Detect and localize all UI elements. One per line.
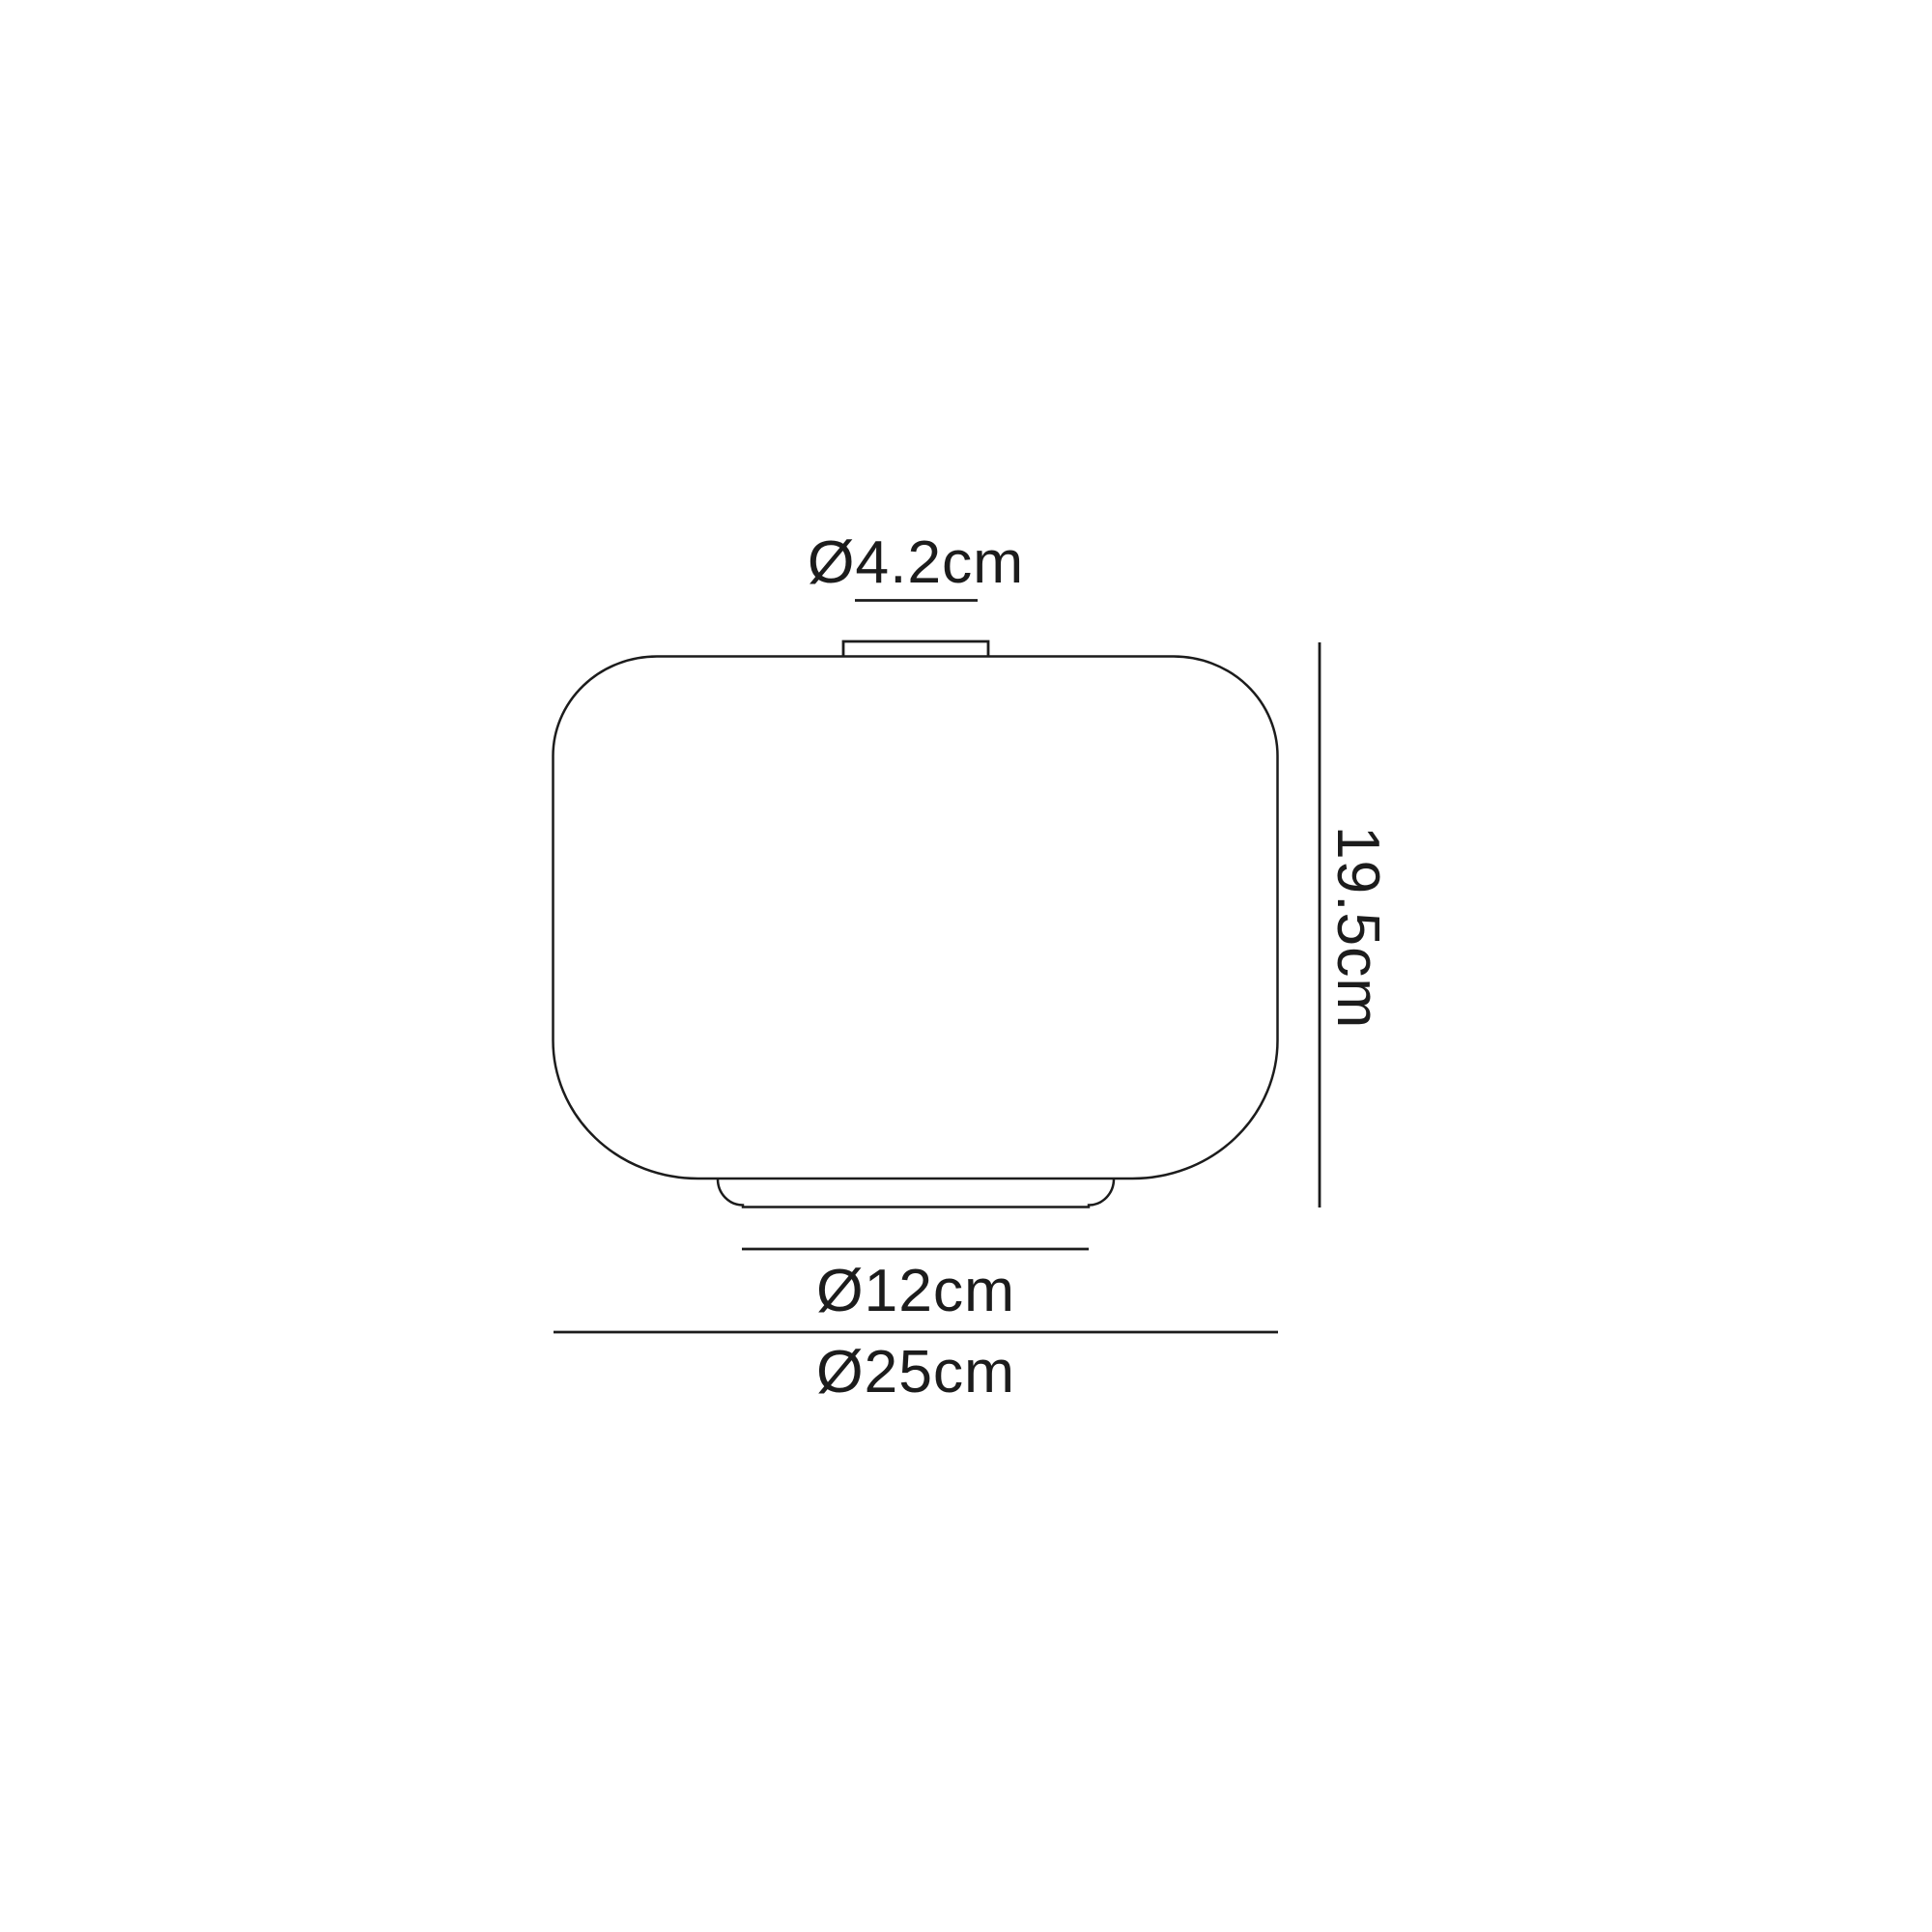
svg-text:Ø12cm: Ø12cm <box>816 1257 1015 1324</box>
svg-text:19.5cm: 19.5cm <box>1324 826 1392 1029</box>
svg-text:Ø4.2cm: Ø4.2cm <box>808 528 1024 596</box>
svg-text:Ø25cm: Ø25cm <box>816 1338 1015 1406</box>
